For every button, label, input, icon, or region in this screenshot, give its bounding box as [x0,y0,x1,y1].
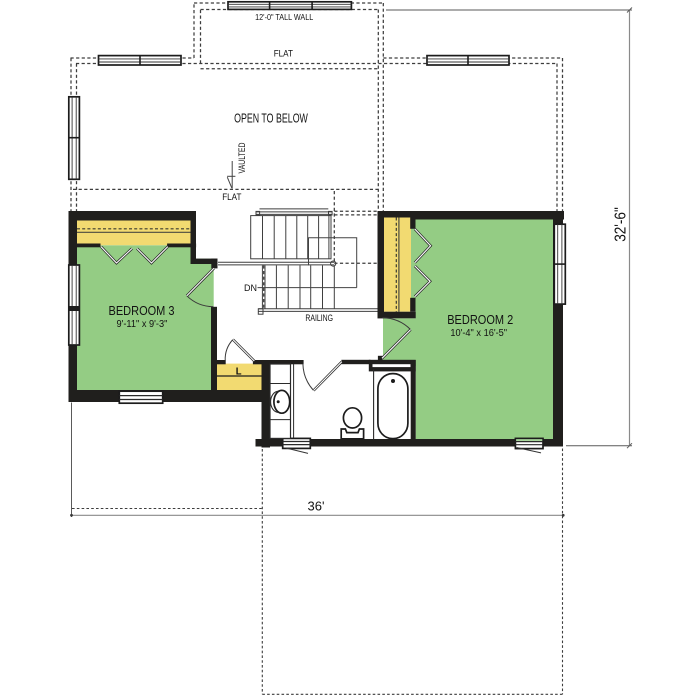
svg-text:9'-11" x 9'-3": 9'-11" x 9'-3" [116,319,167,331]
svg-text:VAULTED: VAULTED [236,143,247,174]
svg-text:FLAT: FLAT [222,192,241,202]
svg-text:DN: DN [244,283,257,293]
svg-text:36': 36' [308,499,325,514]
svg-text:L: L [236,366,242,377]
svg-text:FLAT: FLAT [274,48,293,58]
svg-text:BEDROOM 2: BEDROOM 2 [447,313,513,327]
svg-text:RAILING: RAILING [305,313,333,323]
svg-text:32'-6": 32'-6" [613,207,630,242]
svg-text:BEDROOM 3: BEDROOM 3 [109,304,175,318]
svg-text:OPEN TO BELOW: OPEN TO BELOW [234,112,308,126]
svg-text:10'-4" x 16'-5": 10'-4" x 16'-5" [450,328,507,340]
svg-text:12'-0" TALL WALL: 12'-0" TALL WALL [255,12,314,22]
